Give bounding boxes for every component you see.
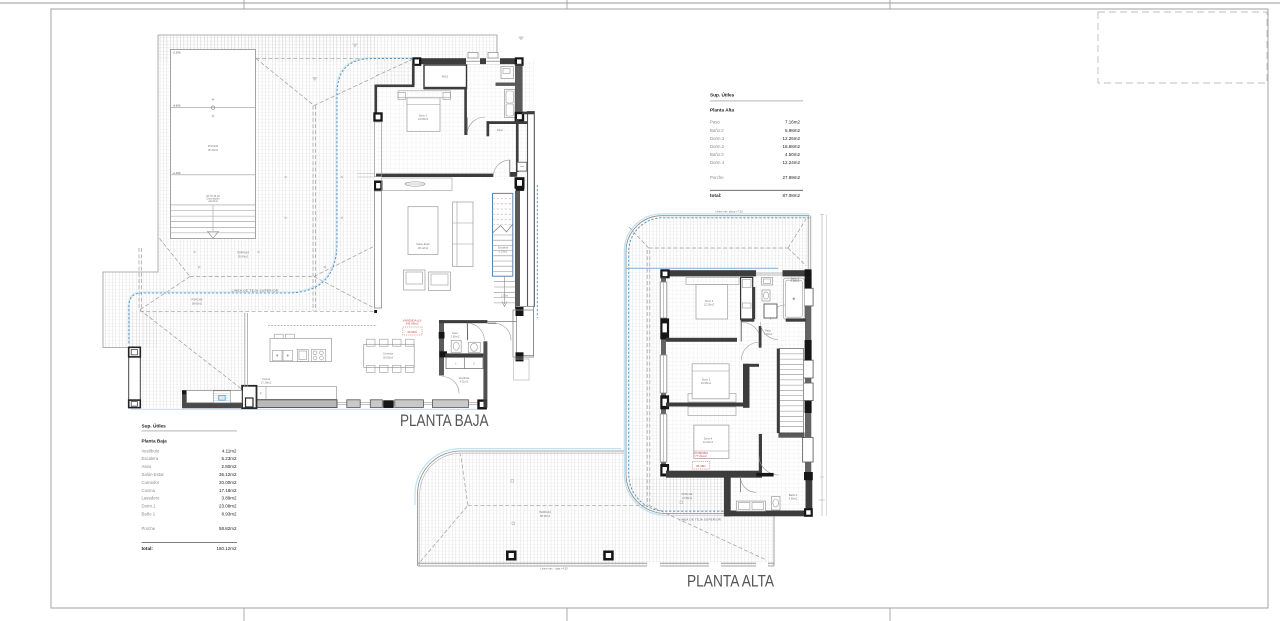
svg-text:4.50m2: 4.50m2 — [785, 152, 801, 157]
svg-text:3.89m2: 3.89m2 — [221, 496, 237, 501]
svg-text:PAS1: PAS1 — [442, 75, 449, 79]
svg-text:+0.60%: +0.60% — [173, 105, 182, 108]
svg-text:Baño 1: Baño 1 — [142, 512, 156, 517]
svg-text:23.08m2: 23.08m2 — [418, 117, 429, 121]
svg-text:5.98m2: 5.98m2 — [785, 128, 801, 133]
svg-text:Planta Alta: Planta Alta — [710, 108, 734, 113]
svg-text:12.26m2: 12.26m2 — [704, 303, 715, 307]
svg-text:77.21m2: 77.21m2 — [695, 454, 707, 458]
svg-text:Dorm 2: Dorm 2 — [702, 378, 711, 382]
svg-text:27.89m2: 27.89m2 — [782, 175, 800, 180]
svg-text:35.40m2: 35.40m2 — [208, 148, 219, 152]
svg-text:4.11m2: 4.11m2 — [460, 380, 469, 384]
svg-text:2.50m: 2.50m — [501, 294, 508, 298]
svg-text:58.82m2: 58.82m2 — [219, 526, 237, 531]
svg-text:27.89m2: 27.89m2 — [682, 496, 693, 500]
svg-text:Sup. Útiles: Sup. Útiles — [142, 423, 167, 429]
svg-text:+1.50%: +1.50% — [173, 52, 182, 55]
svg-text:Baño 3: Baño 3 — [710, 152, 724, 157]
svg-text:total:: total: — [142, 546, 154, 551]
svg-text:Lavadero: Lavadero — [142, 496, 161, 501]
svg-text:PORCHE: PORCHE — [681, 492, 692, 496]
svg-text:Dorm.2: Dorm.2 — [710, 144, 725, 149]
svg-text:Paso: Paso — [765, 329, 771, 333]
svg-text:Dorm.3: Dorm.3 — [710, 136, 725, 141]
svg-text:PLANTA ALTA: PLANTA ALTA — [687, 573, 774, 591]
svg-text:Línea máx. altura +7.50: Línea máx. altura +7.50 — [715, 210, 743, 214]
svg-text:Sup. Útiles: Sup. Útiles — [710, 92, 735, 98]
svg-text:Escalera: Escalera — [142, 456, 159, 461]
svg-text:+6a 6cm: +6a 6cm — [208, 199, 218, 203]
svg-text:12.26m2: 12.26m2 — [782, 136, 800, 141]
svg-text:Dorm 4: Dorm 4 — [710, 160, 725, 165]
svg-text:20.00m2: 20.00m2 — [383, 355, 394, 359]
svg-text:TERRAZA: TERRAZA — [237, 251, 249, 255]
svg-text:Planta Baja: Planta Baja — [142, 439, 168, 444]
svg-text:LINEA DE TEJA SUPERIOR: LINEA DE TEJA SUPERIOR — [679, 518, 721, 522]
svg-text:180.12m2: 180.12m2 — [216, 546, 237, 551]
svg-text:Escalera: Escalera — [498, 246, 509, 250]
svg-text:Paso: Paso — [497, 128, 503, 132]
svg-text:Vestíbulo: Vestíbulo — [142, 448, 160, 453]
svg-text:Dorm 3: Dorm 3 — [705, 299, 714, 303]
svg-text:35.38m: 35.38m — [696, 464, 707, 468]
svg-text:2.80m2: 2.80m2 — [451, 334, 460, 338]
svg-text:36.12m2: 36.12m2 — [219, 472, 237, 477]
svg-text:Cocina: Cocina — [262, 377, 271, 381]
svg-text:12.24m2: 12.24m2 — [703, 440, 714, 444]
svg-text:36.12m2: 36.12m2 — [418, 246, 429, 250]
svg-text:Comedor: Comedor — [142, 480, 160, 485]
svg-text:35.40m2: 35.40m2 — [238, 254, 249, 258]
svg-text:32.08m: 32.08m — [407, 330, 418, 334]
svg-text:2.80m2: 2.80m2 — [221, 464, 237, 469]
svg-text:Vestíbulo: Vestíbulo — [459, 376, 470, 380]
svg-text:4.11m2: 4.11m2 — [222, 448, 237, 453]
svg-text:Salón-Estar: Salón-Estar — [416, 242, 430, 246]
svg-text:S: S — [473, 362, 475, 366]
svg-text:16.68m2: 16.68m2 — [701, 381, 712, 385]
svg-text:+1.20%: +1.20% — [173, 172, 182, 175]
svg-text:Aseo: Aseo — [142, 464, 152, 469]
svg-text:87.08m2: 87.08m2 — [782, 193, 800, 198]
svg-text:PISCINA: PISCINA — [208, 144, 219, 148]
svg-text:Dorm 4: Dorm 4 — [704, 437, 713, 441]
svg-text:Paso: Paso — [710, 120, 720, 125]
svg-text:17.18m2: 17.18m2 — [261, 381, 272, 385]
svg-text:Baño 2: Baño 2 — [710, 128, 724, 133]
svg-text:PLANTA BAJA: PLANTA BAJA — [400, 412, 489, 430]
svg-text:4.50m2: 4.50m2 — [789, 497, 798, 501]
svg-text:7.16m2: 7.16m2 — [785, 120, 801, 125]
svg-text:Salón-Estar: Salón-Estar — [142, 472, 165, 477]
svg-text:58.82m2: 58.82m2 — [192, 301, 203, 305]
svg-text:5.23m2: 5.23m2 — [499, 249, 508, 253]
svg-text:total:: total: — [710, 193, 722, 198]
svg-text:Cocina: Cocina — [142, 488, 156, 493]
svg-text:Aseo: Aseo — [452, 331, 458, 335]
svg-text:Porche: Porche — [710, 175, 724, 180]
svg-text:23.08m2: 23.08m2 — [219, 504, 237, 509]
svg-text:7.16m2: 7.16m2 — [764, 332, 773, 336]
svg-text:Dorm 1: Dorm 1 — [419, 114, 428, 118]
svg-text:TERRAZA: TERRAZA — [539, 510, 551, 514]
svg-text:5.23m2: 5.23m2 — [221, 456, 237, 461]
svg-text:Comedor: Comedor — [383, 352, 394, 356]
svg-text:16.68m2: 16.68m2 — [782, 144, 800, 149]
svg-text:Porche: Porche — [142, 526, 156, 531]
svg-text:5.98m2: 5.98m2 — [791, 279, 800, 283]
svg-text:Dorm.1: Dorm.1 — [142, 504, 157, 509]
svg-text:20.00m2: 20.00m2 — [219, 480, 237, 485]
svg-text:8.93m2: 8.93m2 — [221, 512, 237, 517]
svg-text:LINEA DE TEJA SUPERIOR: LINEA DE TEJA SUPERIOR — [232, 289, 279, 293]
svg-text:12.24m2: 12.24m2 — [782, 160, 800, 165]
svg-text:PORCHE: PORCHE — [191, 298, 202, 302]
svg-text:58.35m2: 58.35m2 — [540, 514, 551, 518]
svg-text:Baño 3: Baño 3 — [789, 493, 798, 497]
svg-text:Línea máx. - baja +4.50: Línea máx. - baja +4.50 — [540, 567, 568, 571]
svg-text:17.18m2: 17.18m2 — [219, 488, 237, 493]
svg-text:143.96m2: 143.96m2 — [405, 322, 419, 326]
